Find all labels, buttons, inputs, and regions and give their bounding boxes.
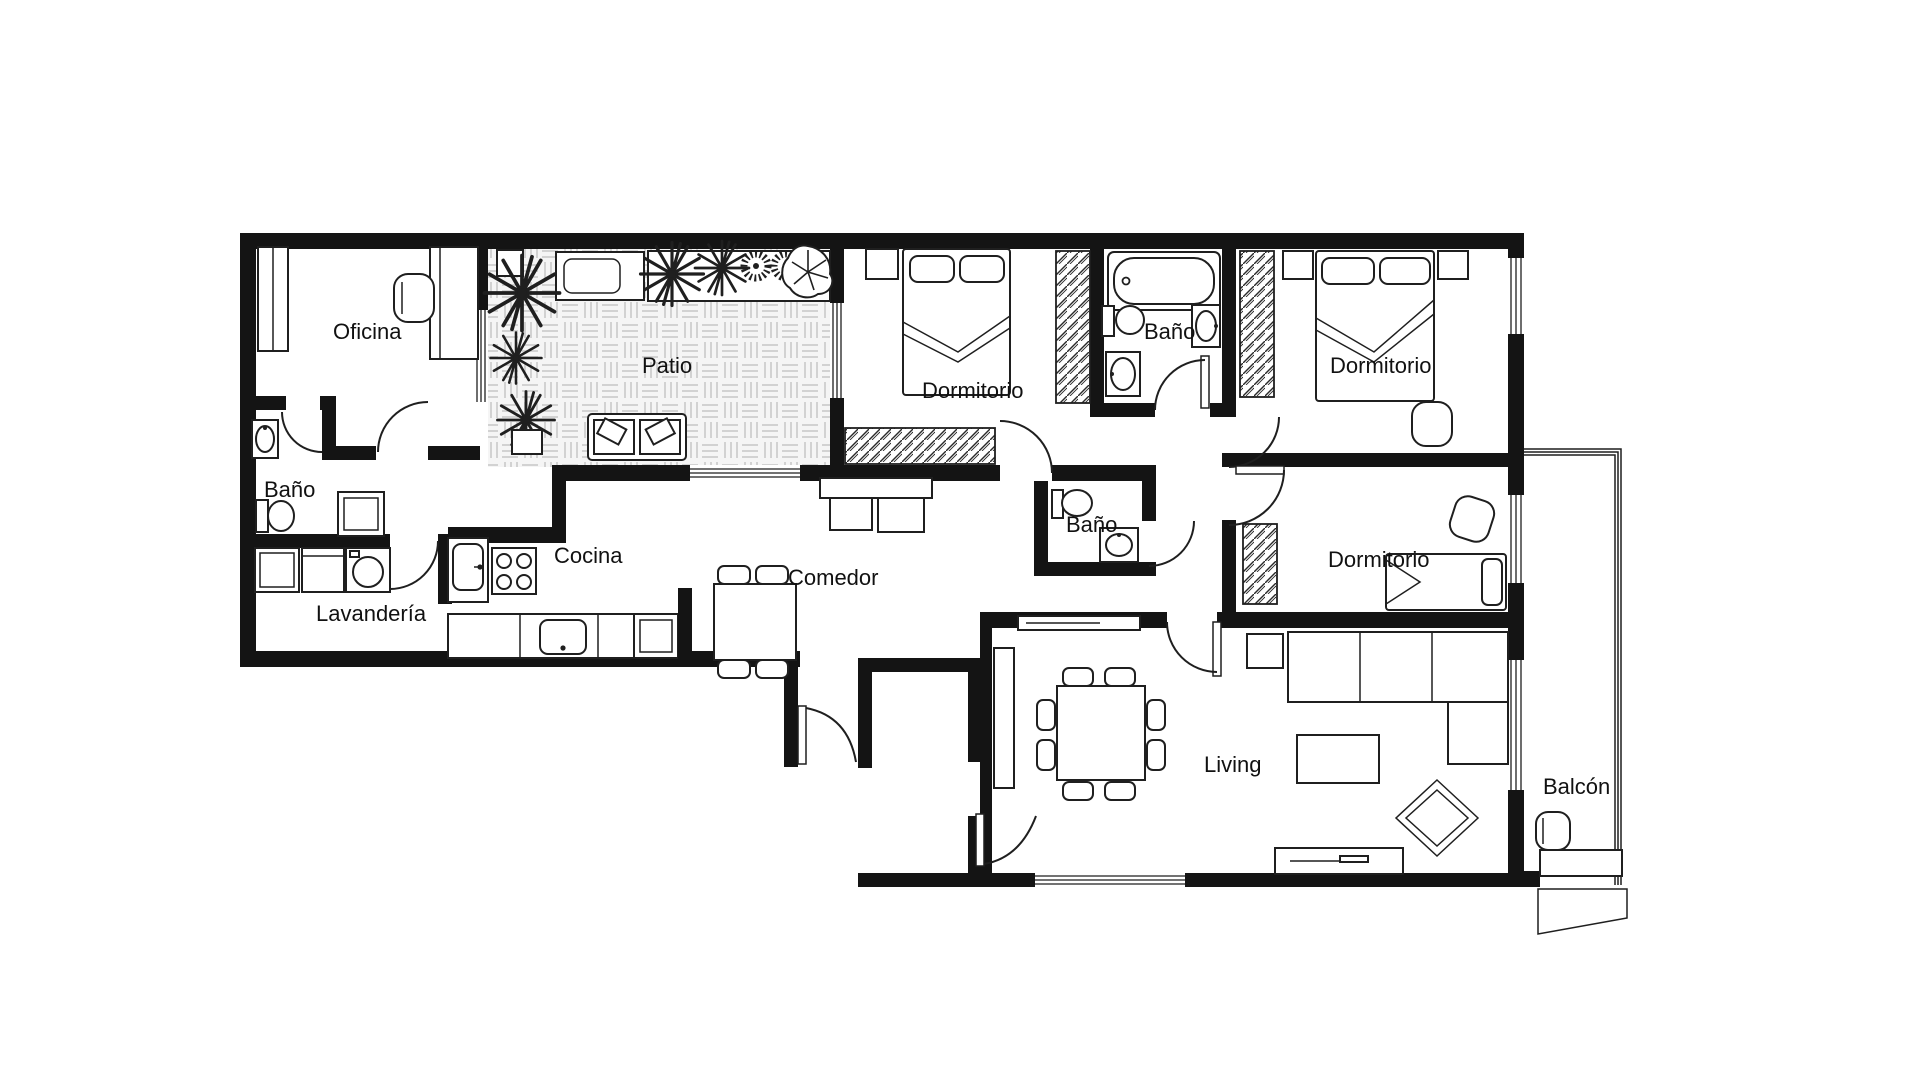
side-table — [1247, 634, 1283, 668]
kitchen-wall-stub — [678, 588, 692, 660]
window-living-bottom — [1035, 873, 1185, 887]
door-bano-sup — [1155, 356, 1209, 410]
nightstand — [866, 249, 898, 279]
balcony-lower-deck — [1538, 889, 1627, 934]
desk-chair — [394, 274, 434, 322]
room-label-cocina: Cocina — [554, 543, 623, 568]
closet-dorm2 — [1240, 251, 1274, 397]
window-dorm2-balcony — [1508, 258, 1524, 334]
window-patio-dorm1 — [830, 303, 844, 398]
door-living — [1167, 622, 1221, 676]
dorm2-furniture — [1283, 251, 1468, 446]
nightstand — [1283, 251, 1313, 279]
chair — [1446, 493, 1497, 545]
plant-pot — [512, 430, 542, 454]
console — [1018, 616, 1140, 630]
sink-bottom — [1106, 352, 1140, 396]
room-label-living: Living — [1204, 752, 1261, 777]
door-dorm3 — [1229, 466, 1284, 525]
room-label-balcon: Balcón — [1543, 774, 1610, 799]
dining-table — [1037, 668, 1165, 800]
door-lavanderia — [390, 541, 438, 589]
closet-dorm1-side — [1056, 251, 1090, 403]
rug — [1396, 780, 1478, 856]
door-bano-med — [1149, 521, 1194, 566]
floor-plan-page: Oficina Baño Patio Dormitorio Baño Dormi… — [0, 0, 1920, 1080]
balcony-chair — [1536, 812, 1570, 850]
door-bano-izq — [282, 412, 322, 452]
tall-cabinet — [994, 648, 1014, 788]
tv-cabinet — [1275, 848, 1403, 874]
door-dorm1 — [1000, 421, 1052, 473]
room-label-patio: Patio — [642, 353, 692, 378]
counter — [302, 548, 344, 592]
room-label-dormitorio-2: Dormitorio — [1330, 353, 1431, 378]
room-label-bano-izq: Baño — [264, 477, 315, 502]
lavanderia-fixtures — [255, 548, 390, 592]
floor-plan: Oficina Baño Patio Dormitorio Baño Dormi… — [0, 0, 1920, 1080]
nightstand — [1438, 251, 1468, 279]
window-patio-comedor — [690, 465, 800, 481]
window-dorm3-balcony — [1508, 495, 1524, 583]
kitchen-lower-counter — [448, 614, 678, 658]
room-label-bano-sup: Baño — [1144, 319, 1195, 344]
bathtub — [1108, 252, 1220, 310]
sink-right — [1192, 305, 1220, 347]
coffee-table — [1297, 735, 1379, 783]
kitchen-sink-counter — [448, 538, 488, 602]
balcony-table — [1540, 850, 1622, 876]
bed — [1316, 251, 1434, 401]
room-label-dormitorio-3: Dormitorio — [1328, 547, 1429, 572]
bed — [903, 249, 1010, 395]
room-label-lavanderia: Lavandería — [316, 601, 427, 626]
door-entrada — [798, 706, 856, 764]
toilet-tank — [256, 500, 268, 532]
laundry-sink — [255, 548, 299, 592]
dorm1-furniture — [866, 249, 1010, 395]
window-living-balcony — [1508, 660, 1524, 790]
toilet-tank — [1102, 306, 1114, 336]
closet-dorm1-bottom — [845, 428, 995, 464]
stove — [492, 548, 536, 594]
sideboard — [820, 478, 932, 532]
chair — [1412, 402, 1452, 446]
living-furniture — [994, 616, 1508, 874]
room-label-dormitorio-1: Dormitorio — [922, 378, 1023, 403]
toilet-bowl — [1116, 306, 1144, 334]
room-label-oficina: Oficina — [333, 319, 402, 344]
closet-dorm3 — [1243, 524, 1277, 604]
sofa-chaise — [1448, 702, 1508, 764]
room-label-comedor: Comedor — [788, 565, 878, 590]
balcon-structure — [1524, 449, 1627, 934]
patio-sofa — [588, 414, 686, 460]
desk — [430, 247, 478, 359]
door-oficina — [378, 402, 428, 452]
washing-machine — [346, 548, 390, 592]
toilet-bowl — [268, 501, 294, 531]
room-label-bano-med: Baño — [1066, 512, 1117, 537]
